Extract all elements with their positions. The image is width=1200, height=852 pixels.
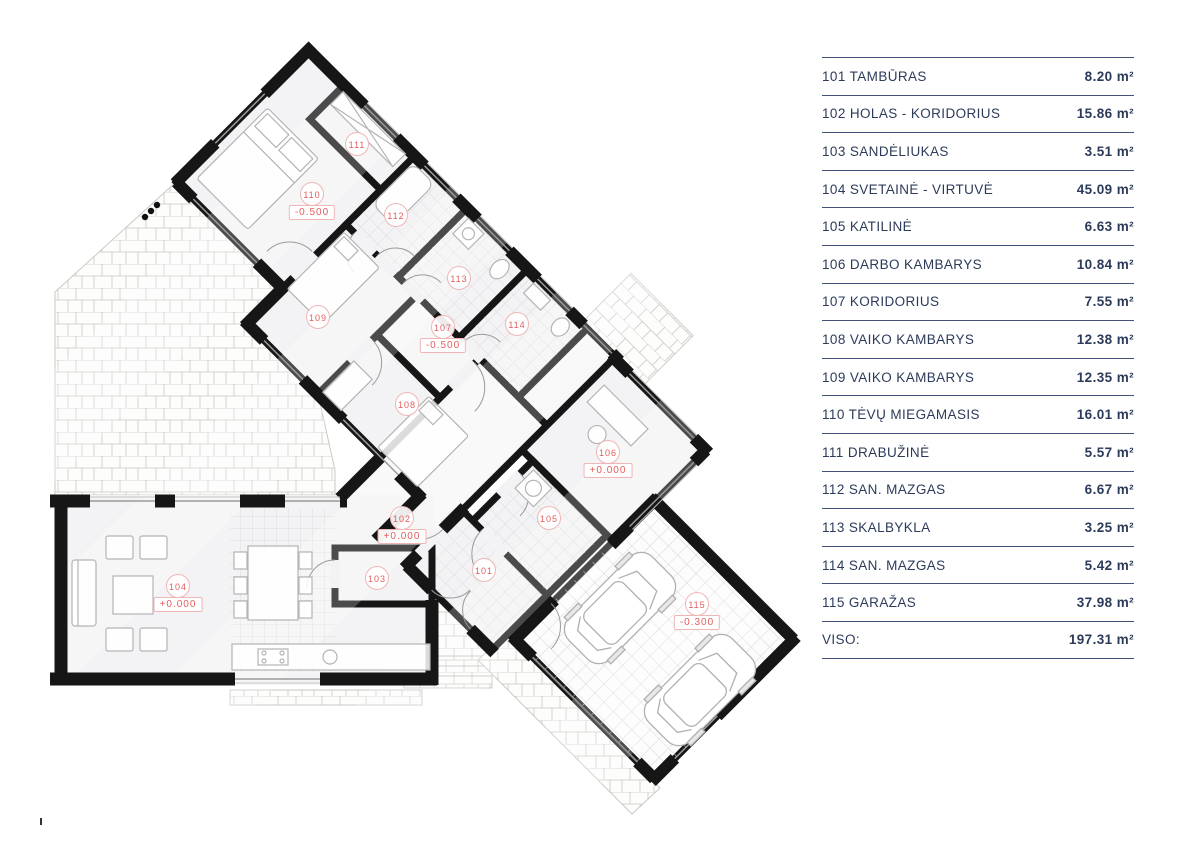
legend-row-value: 37.98 m² [1077, 595, 1134, 610]
legend-row-value: 16.01 m² [1077, 407, 1134, 422]
room-elevation-tag: +0.000 [154, 597, 203, 612]
legend-row-label: 103 SANDĖLIUKAS [822, 144, 949, 159]
legend-row-label: 101 TAMBŪRAS [822, 69, 927, 84]
room-number-badge: 103 [365, 566, 389, 590]
legend-row: 101 TAMBŪRAS 8.20 m² [822, 57, 1134, 95]
legend-row-value: 5.42 m² [1085, 558, 1134, 573]
legend-row-label: 110 TĖVŲ MIEGAMASIS [822, 407, 980, 422]
legend-total-label: VISO: [822, 632, 860, 647]
page: 101102+0.000103104+0.000105106+0.000107-… [0, 0, 1200, 852]
legend-row: 102 HOLAS - KORIDORIUS 15.86 m² [822, 95, 1134, 133]
room-number-badge: 114 [505, 312, 529, 336]
legend-row-label: 107 KORIDORIUS [822, 294, 939, 309]
legend-total-value: 197.31 m² [1069, 632, 1134, 647]
room-number-badge: 110 [300, 182, 324, 206]
room-elevation-tag: +0.000 [584, 463, 633, 478]
room-number-badge: 106 [596, 440, 620, 464]
legend-row-label: 106 DARBO KAMBARYS [822, 257, 982, 272]
room-elevation-tag: -0.300 [674, 615, 720, 630]
legend-row-label: 104 SVETAINĖ - VIRTUVĖ [822, 182, 993, 197]
legend-row: 112 SAN. MAZGAS 6.67 m² [822, 471, 1134, 509]
legend-row-value: 7.55 m² [1085, 294, 1134, 309]
legend-row-value: 6.67 m² [1085, 482, 1134, 497]
legend-row-label: 105 KATILINĖ [822, 219, 912, 234]
room-number-badge: 113 [447, 266, 471, 290]
room-number-badge: 109 [306, 305, 330, 329]
legend-row-label: 111 DRABUŽINĖ [822, 445, 929, 460]
legend-row: 107 KORIDORIUS 7.55 m² [822, 283, 1134, 321]
legend-row: 105 KATILINĖ 6.63 m² [822, 207, 1134, 245]
legend-row-label: 115 GARAŽAS [822, 595, 916, 610]
room-number-badge: 115 [685, 592, 709, 616]
room-number-badge: 111 [345, 132, 369, 156]
legend-row-label: 102 HOLAS - KORIDORIUS [822, 106, 1000, 121]
legend-row-value: 6.63 m² [1085, 219, 1134, 234]
legend-row-value: 3.51 m² [1085, 144, 1134, 159]
legend-row: 113 SKALBYKLA 3.25 m² [822, 508, 1134, 546]
legend-row-label: 113 SKALBYKLA [822, 520, 931, 535]
legend-row-value: 10.84 m² [1077, 257, 1134, 272]
legend-row: 114 SAN. MAZGAS 5.42 m² [822, 546, 1134, 584]
legend-row: 109 VAIKO KAMBARYS 12.35 m² [822, 358, 1134, 396]
legend-row-value: 8.20 m² [1085, 69, 1134, 84]
room-number-badge: 108 [395, 392, 419, 416]
legend-row-label: 109 VAIKO KAMBARYS [822, 370, 974, 385]
legend-row-value: 12.38 m² [1077, 332, 1134, 347]
legend-row: 104 SVETAINĖ - VIRTUVĖ 45.09 m² [822, 170, 1134, 208]
legend-row-value: 3.25 m² [1085, 520, 1134, 535]
legend-row-label: 114 SAN. MAZGAS [822, 558, 946, 573]
legend-row: 111 DRABUŽINĖ 5.57 m² [822, 433, 1134, 471]
legend-row-value: 12.35 m² [1077, 370, 1134, 385]
legend-row: 103 SANDĖLIUKAS 3.51 m² [822, 132, 1134, 170]
room-elevation-tag: -0.500 [420, 338, 466, 353]
room-number-badge: 101 [472, 558, 496, 582]
legend-row-value: 15.86 m² [1077, 106, 1134, 121]
legend-table: 101 TAMBŪRAS 8.20 m² 102 HOLAS - KORIDOR… [822, 57, 1134, 659]
legend-row-value: 45.09 m² [1077, 182, 1134, 197]
room-number-badge: 105 [537, 506, 561, 530]
legend-row-label: 112 SAN. MAZGAS [822, 482, 946, 497]
room-number-badge: 112 [384, 203, 408, 227]
legend-total-row: VISO: 197.31 m² [822, 621, 1134, 659]
legend-row-value: 5.57 m² [1085, 445, 1134, 460]
room-elevation-tag: -0.500 [289, 205, 335, 220]
legend-row: 115 GARAŽAS 37.98 m² [822, 583, 1134, 621]
plan-labels: 101102+0.000103104+0.000105106+0.000107-… [0, 0, 820, 852]
room-number-badge: 104 [166, 574, 190, 598]
room-number-badge: 107 [431, 315, 455, 339]
room-number-badge: 102 [390, 506, 414, 530]
legend-row: 110 TĖVŲ MIEGAMASIS 16.01 m² [822, 395, 1134, 433]
legend-row: 108 VAIKO KAMBARYS 12.38 m² [822, 320, 1134, 358]
legend-row-label: 108 VAIKO KAMBARYS [822, 332, 974, 347]
legend-row: 106 DARBO KAMBARYS 10.84 m² [822, 245, 1134, 283]
room-elevation-tag: +0.000 [378, 529, 427, 544]
